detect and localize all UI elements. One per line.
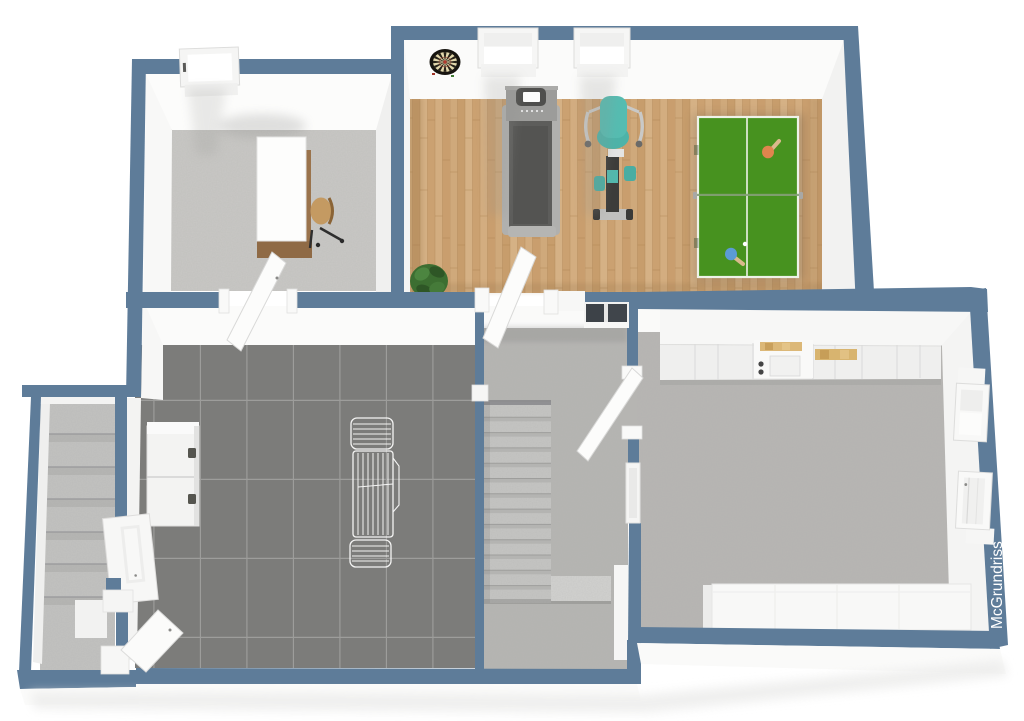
svg-text:McGrundriss: McGrundriss: [989, 541, 1006, 629]
